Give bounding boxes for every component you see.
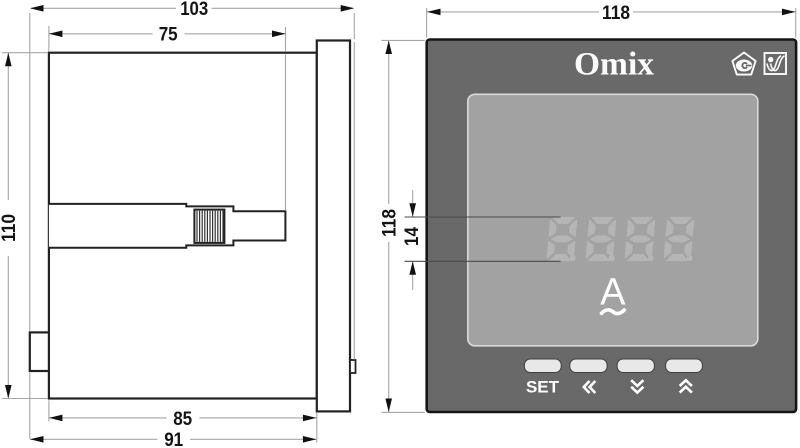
svg-text:85: 85 bbox=[173, 408, 192, 430]
svg-text:103: 103 bbox=[180, 0, 208, 20]
svg-text:110: 110 bbox=[0, 214, 20, 242]
svg-text:SET: SET bbox=[526, 378, 560, 397]
svg-text:75: 75 bbox=[159, 24, 178, 46]
svg-text:Omix: Omix bbox=[574, 47, 655, 83]
svg-text:A: A bbox=[600, 272, 626, 314]
svg-text:91: 91 bbox=[164, 429, 183, 448]
svg-text:14: 14 bbox=[401, 227, 423, 246]
svg-text:118: 118 bbox=[379, 209, 401, 237]
svg-text:118: 118 bbox=[602, 2, 630, 24]
